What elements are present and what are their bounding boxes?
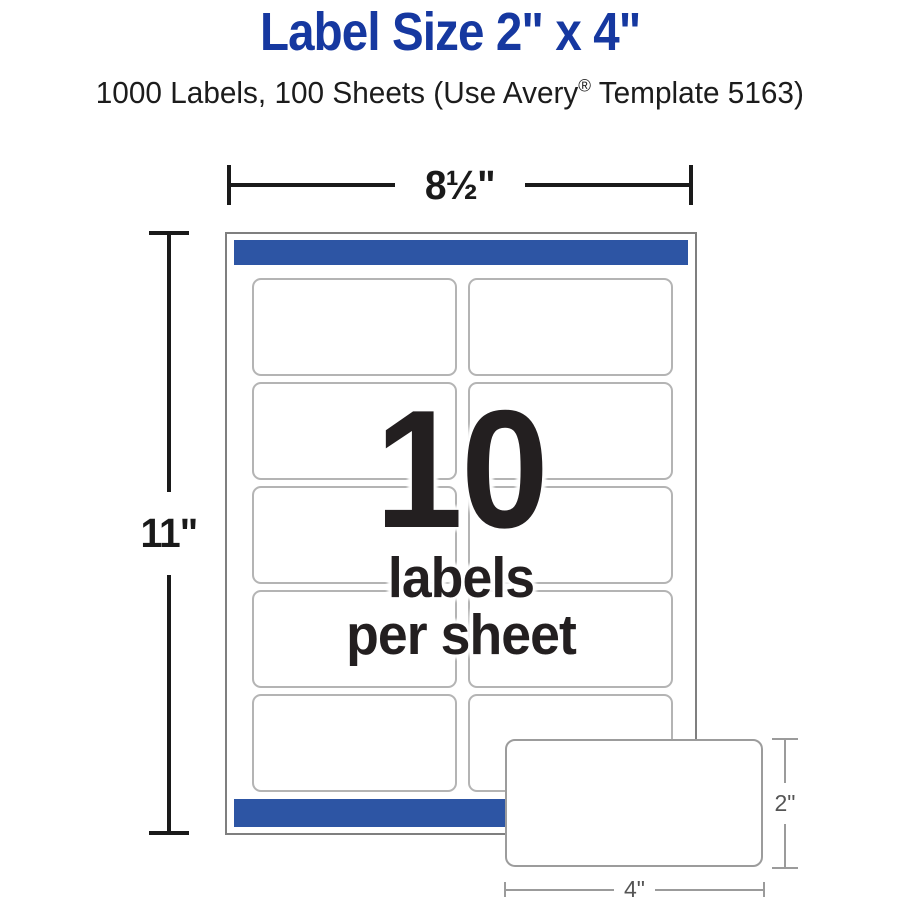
dimension-line — [167, 235, 171, 492]
dimension-tick — [763, 882, 765, 897]
sheet-header-bar — [234, 240, 688, 265]
dimension-line — [655, 889, 763, 891]
label-width-dimension: 4" — [504, 881, 765, 898]
label-cell — [252, 278, 457, 376]
label-width-label: 4" — [614, 876, 655, 903]
label-cell — [252, 590, 457, 688]
dimension-line — [167, 575, 171, 832]
subtitle-text-end: Template 5163) — [591, 75, 804, 110]
label-grid — [252, 278, 673, 792]
dimension-line — [506, 889, 614, 891]
label-cell — [252, 382, 457, 480]
sheet-width-label: 8½" — [399, 162, 522, 209]
label-height-label: 2" — [775, 783, 796, 824]
dimension-line — [784, 824, 786, 867]
label-cell — [468, 382, 673, 480]
sheet-height-label: 11" — [141, 492, 198, 575]
dimension-line — [784, 740, 786, 783]
subtitle-text: 1000 Labels, 100 Sheets (Use Avery — [96, 75, 579, 110]
single-label-callout — [505, 739, 763, 867]
label-cell — [252, 694, 457, 792]
dimension-tick — [689, 165, 693, 205]
label-cell — [468, 486, 673, 584]
registered-trademark-symbol: ® — [578, 76, 591, 96]
label-cell — [468, 278, 673, 376]
dimension-tick — [772, 867, 798, 869]
sheet-height-dimension: 11" — [149, 231, 189, 835]
sheet-width-dimension: 8½" — [227, 165, 693, 205]
dimension-line — [231, 183, 395, 187]
page-title: Label Size 2" x 4" — [0, 0, 900, 78]
dimension-tick — [149, 831, 189, 835]
label-cell — [468, 590, 673, 688]
page-subtitle: 1000 Labels, 100 Sheets (Use Avery® Temp… — [0, 72, 900, 120]
dimension-line — [525, 183, 689, 187]
label-height-dimension: 2" — [772, 738, 798, 869]
label-cell — [252, 486, 457, 584]
